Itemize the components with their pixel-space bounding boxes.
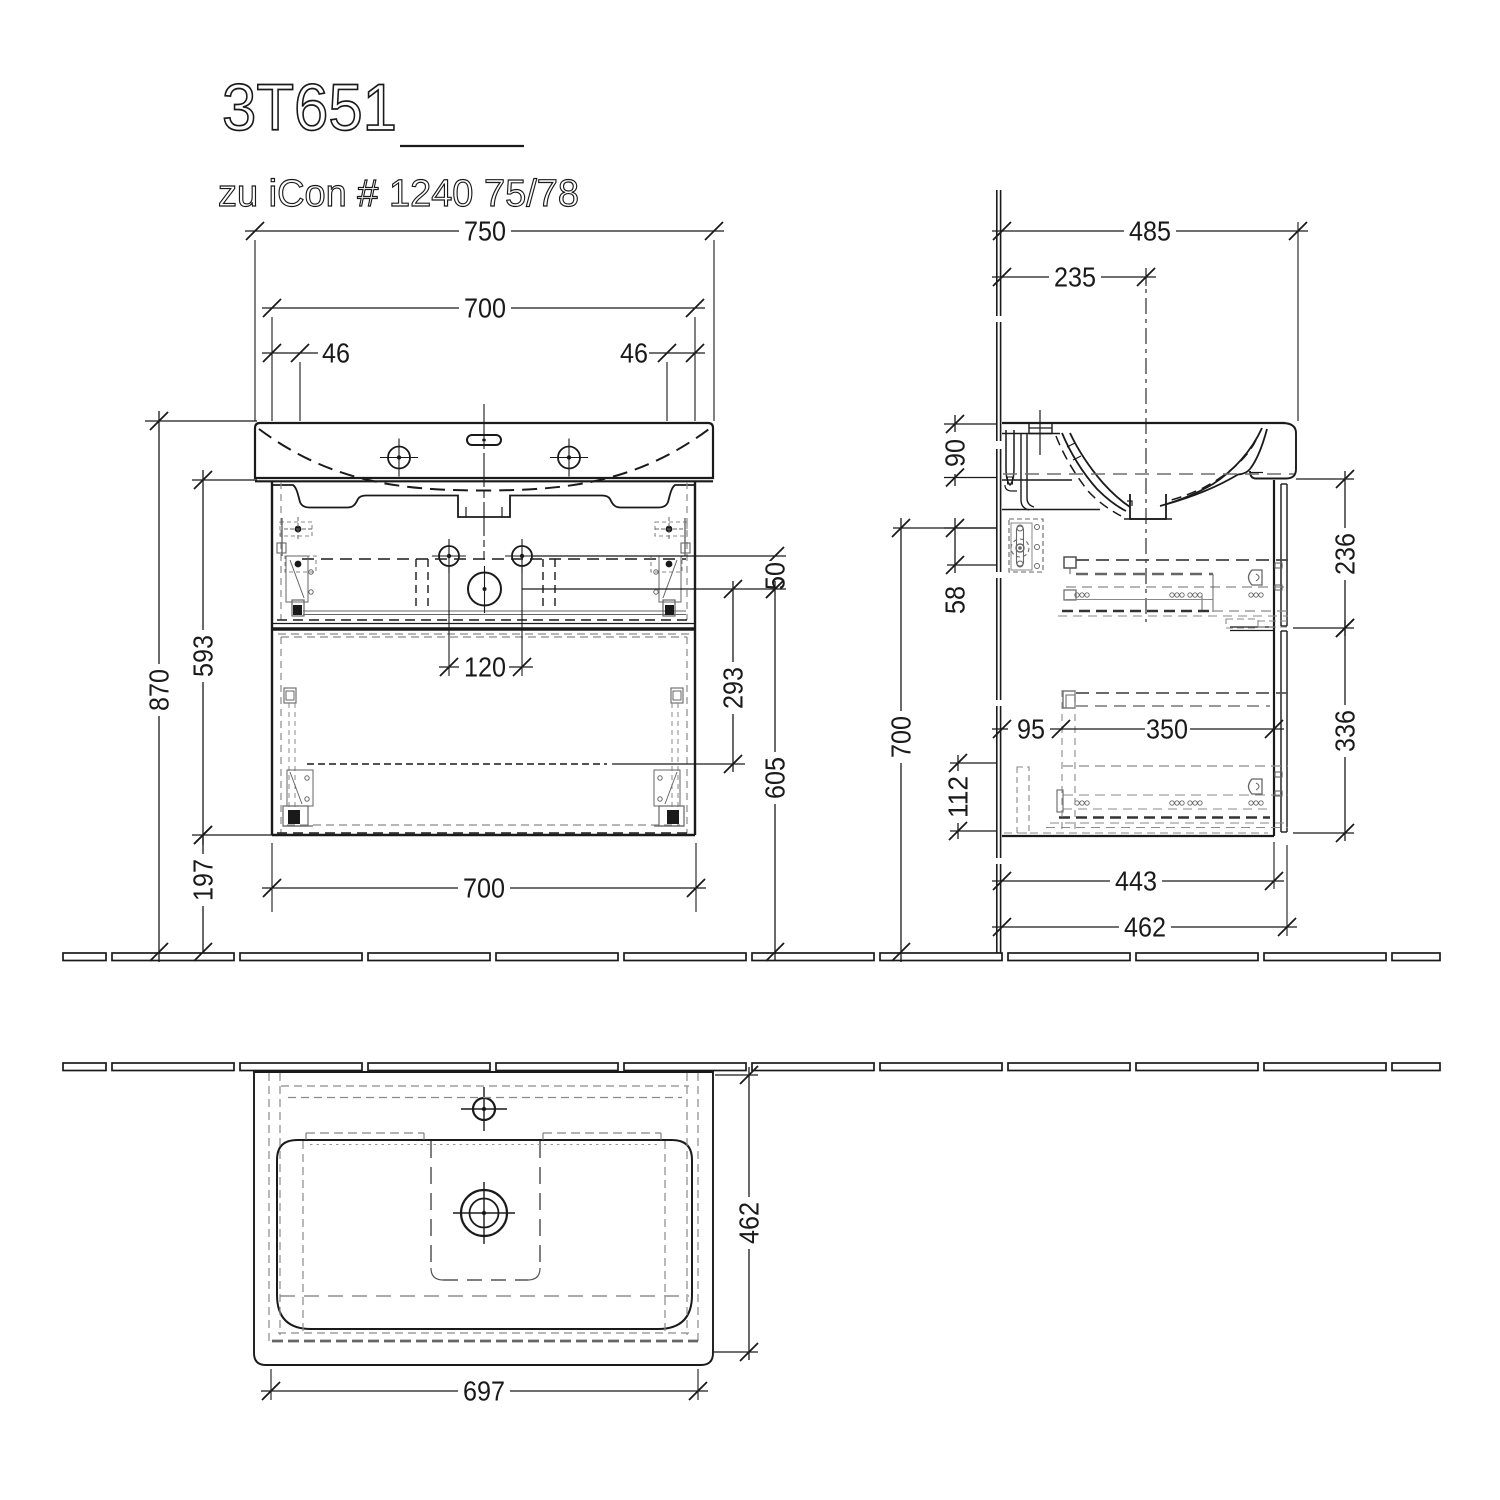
- svg-text:58: 58: [940, 586, 971, 614]
- svg-text:605: 605: [760, 757, 791, 799]
- svg-text:700: 700: [886, 716, 917, 758]
- svg-text:120: 120: [464, 652, 506, 683]
- svg-text:870: 870: [144, 669, 175, 711]
- svg-text:90: 90: [940, 439, 971, 467]
- svg-text:485: 485: [1129, 216, 1171, 247]
- svg-text:46: 46: [322, 338, 350, 369]
- svg-text:zu iCon # 1240 75/78: zu iCon # 1240 75/78: [218, 173, 579, 215]
- svg-text:336: 336: [1330, 710, 1361, 752]
- svg-text:697: 697: [463, 1376, 505, 1407]
- svg-text:750: 750: [464, 216, 506, 247]
- svg-text:236: 236: [1330, 533, 1361, 575]
- svg-text:235: 235: [1054, 262, 1096, 293]
- svg-text:593: 593: [188, 635, 219, 677]
- svg-text:462: 462: [1124, 912, 1166, 943]
- svg-text:112: 112: [943, 776, 974, 818]
- svg-text:3T651: 3T651: [222, 70, 397, 144]
- svg-text:197: 197: [188, 859, 219, 901]
- svg-text:700: 700: [463, 873, 505, 904]
- svg-text:95: 95: [1017, 714, 1045, 745]
- svg-text:350: 350: [1146, 714, 1188, 745]
- svg-text:700: 700: [464, 293, 506, 324]
- svg-text:443: 443: [1115, 866, 1157, 897]
- svg-text:293: 293: [718, 667, 749, 709]
- svg-text:46: 46: [620, 338, 648, 369]
- svg-text:462: 462: [734, 1202, 765, 1244]
